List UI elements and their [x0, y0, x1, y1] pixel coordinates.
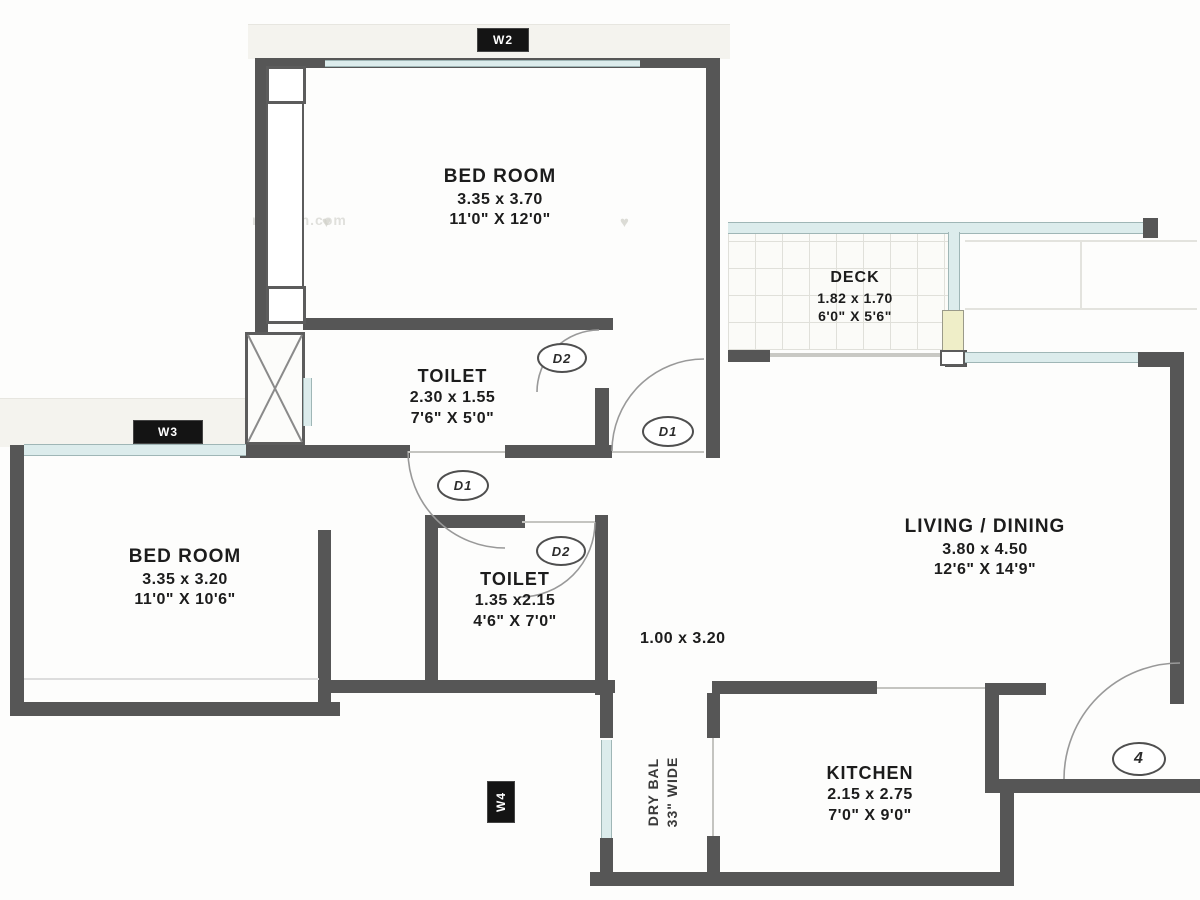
watermark-heart: ♥ [322, 214, 331, 231]
wall [240, 445, 410, 458]
exterior-band-left [0, 398, 248, 447]
window-tag-w2: W2 [477, 28, 529, 52]
wall [706, 58, 720, 458]
room-dim-metric: 3.35 x 3.70 [380, 190, 620, 211]
room-dim-metric: 3.35 x 3.20 [65, 570, 305, 591]
door-tag-d1-bottom: D1 [437, 470, 489, 501]
wardrobe-box [266, 286, 306, 324]
room-label-bedroom1: BED ROOM 3.35 x 3.70 11'0" X 12'0" [380, 165, 620, 231]
room-label-living: LIVING / DINING 3.80 x 4.50 12'6" X 14'9… [860, 515, 1110, 581]
window-w4-glass [601, 740, 612, 838]
wall [425, 515, 525, 528]
wall [707, 693, 720, 738]
watermark-heart: ♥ [620, 214, 629, 231]
wall [1143, 218, 1158, 238]
wall [600, 693, 613, 738]
wall [712, 681, 877, 694]
room-name: BED ROOM [65, 545, 305, 570]
wall [1170, 352, 1184, 704]
room-dim-imperial: 11'0" X 10'6" [65, 590, 305, 611]
room-dim-metric: 1.82 x 1.70 [770, 289, 940, 307]
room-label-toilet1: TOILET 2.30 x 1.55 7'6" X 5'0" [360, 365, 545, 430]
wall [728, 348, 770, 362]
room-name: LIVING / DINING [860, 515, 1110, 540]
wall [590, 872, 1014, 886]
room-dim-metric: 2.15 x 2.75 [760, 785, 980, 806]
drybal-width: 33" WIDE [663, 757, 682, 828]
shaft [245, 332, 305, 445]
room-name: TOILET [360, 365, 545, 388]
deck-railing-top [728, 222, 1148, 234]
neighbor-outline [1080, 240, 1082, 310]
wall [985, 779, 1200, 793]
wall [303, 318, 613, 330]
wardrobe-channel [266, 102, 304, 288]
room-name: BED ROOM [380, 165, 620, 190]
door-tag-d1-top: D1 [642, 416, 694, 447]
window-tag-w4: W4 [487, 781, 515, 823]
entrance-door-tag: 4 [1112, 742, 1166, 776]
wall [10, 445, 24, 716]
room-dim-imperial: 11'0" X 12'0" [380, 210, 620, 231]
room-name: TOILET [430, 568, 600, 591]
toilet-window-glass [303, 378, 312, 426]
room-dim-imperial: 6'0" X 5'6" [770, 307, 940, 325]
room-label-drybal: DRY BAL 33" WIDE [613, 742, 713, 842]
room-dim-imperial: 7'0" X 9'0" [760, 806, 980, 827]
door-tag-d2-bottom: D2 [536, 536, 586, 566]
living-window-glass [963, 352, 1143, 363]
interior-line [24, 678, 319, 680]
room-label-deck: DECK 1.82 x 1.70 6'0" X 5'6" [770, 268, 940, 325]
room-dim-imperial: 7'6" X 5'0" [360, 409, 545, 430]
wardrobe-box [266, 66, 306, 104]
column [942, 310, 964, 354]
room-label-kitchen: KITCHEN 2.15 x 2.75 7'0" X 9'0" [760, 762, 980, 827]
window-tag-w3: W3 [133, 420, 203, 444]
window-w2-glass [325, 60, 640, 67]
room-label-bedroom2: BED ROOM 3.35 x 3.20 11'0" X 10'6" [65, 545, 305, 611]
room-dim-metric: 2.30 x 1.55 [360, 388, 545, 409]
room-label-toilet2: TOILET 1.35 x2.15 4'6" X 7'0" [430, 568, 600, 633]
room-dim-metric: 1.35 x2.15 [430, 591, 600, 612]
column-base [940, 350, 965, 366]
wall [505, 445, 612, 458]
room-name: DECK [770, 268, 940, 289]
wall [985, 694, 999, 786]
room-name: KITCHEN [760, 762, 980, 785]
passage-dimension: 1.00 x 3.20 [640, 630, 726, 648]
deck-sill [770, 353, 945, 357]
wall [1138, 352, 1180, 367]
floor-plan: makaan.com ♥ ♥ [0, 0, 1200, 900]
room-dim-imperial: 12'6" X 14'9" [860, 560, 1110, 581]
drybal-name: DRY BAL [644, 757, 663, 828]
wall [10, 702, 340, 716]
wall [318, 680, 615, 693]
room-dim-imperial: 4'6" X 7'0" [430, 612, 600, 633]
room-dim-metric: 3.80 x 4.50 [860, 540, 1110, 561]
window-w3-glass [24, 444, 246, 456]
